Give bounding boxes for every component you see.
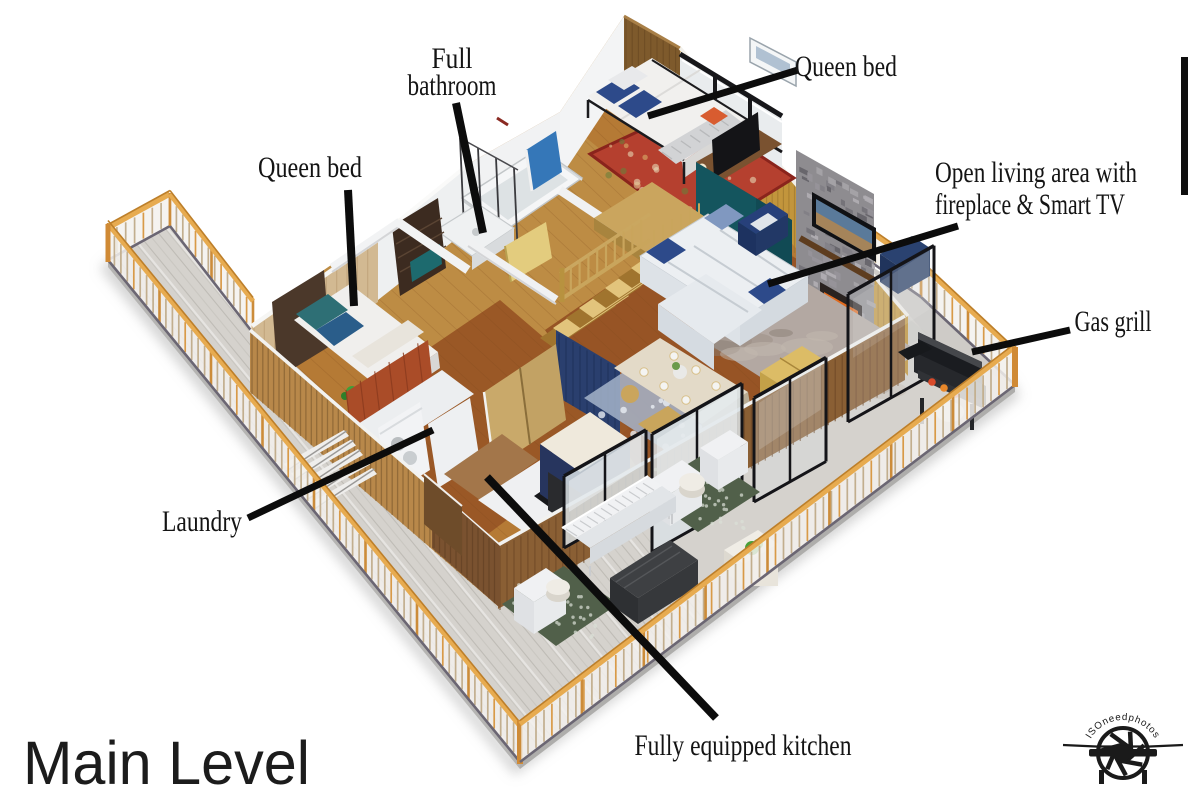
svg-text:fireplace & Smart TV: fireplace & Smart TV xyxy=(935,188,1125,221)
svg-text:Queen bed: Queen bed xyxy=(795,50,897,83)
svg-text:bathroom: bathroom xyxy=(408,69,497,102)
svg-text:Gas grill: Gas grill xyxy=(1075,305,1152,338)
svg-text:Queen bed: Queen bed xyxy=(258,151,362,184)
svg-text:Main Level: Main Level xyxy=(23,729,310,797)
svg-text:Fully equipped kitchen: Fully equipped kitchen xyxy=(635,729,852,762)
svg-text:Laundry: Laundry xyxy=(162,505,242,538)
svg-text:Open living area with: Open living area with xyxy=(935,156,1137,189)
